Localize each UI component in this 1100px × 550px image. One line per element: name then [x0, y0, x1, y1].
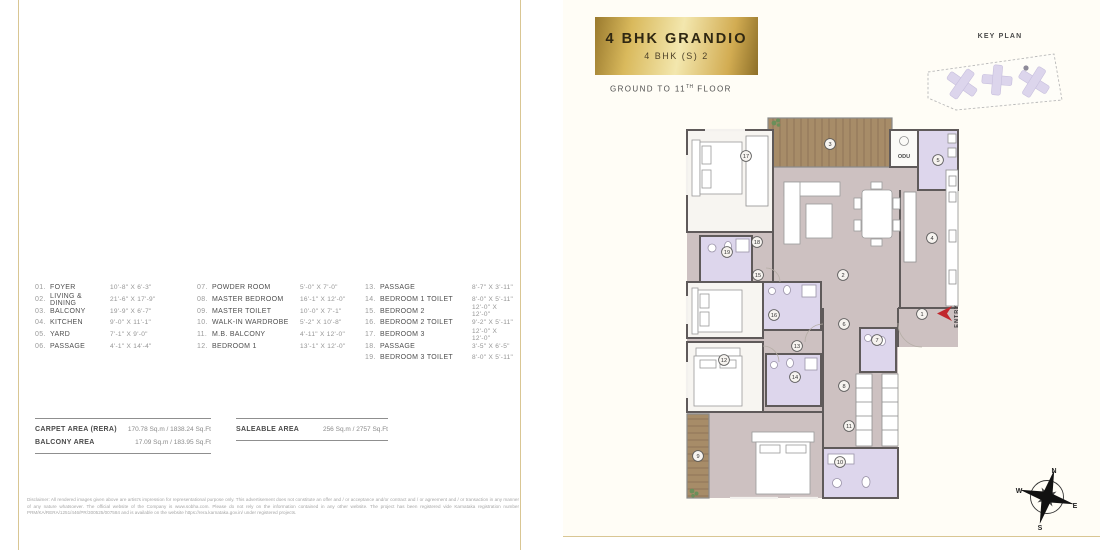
room-marker-10: 10 — [835, 457, 846, 468]
legend-room-dimension: 9'-2" X 5'-11" — [472, 319, 513, 326]
legend-room-name: FOYER — [50, 284, 110, 291]
legend-row: 07. POWDER ROOM 5'-0" X 7'-0" — [197, 282, 365, 294]
svg-text:1: 1 — [920, 312, 923, 318]
saleable-area-value: 256 Sq.m / 2757 Sq.Ft — [323, 426, 388, 433]
highlighted-unit-dot — [1023, 65, 1028, 70]
legend-number: 13. — [365, 284, 380, 291]
legend-number: 05. — [35, 331, 50, 338]
room-marker-16: 16 — [769, 310, 780, 321]
legend-column-2: 07. POWDER ROOM 5'-0" X 7'-0" 08. MASTER… — [197, 282, 365, 352]
legend-room-name: BEDROOM 2 — [380, 308, 472, 315]
legend-room-dimension: 5'-0" X 7'-0" — [300, 284, 338, 291]
saleable-area-table: SALEABLE AREA 256 Sq.m / 2757 Sq.Ft — [236, 418, 388, 441]
svg-text:18: 18 — [754, 240, 760, 246]
compass-rose: N E S W — [1012, 462, 1082, 532]
svg-text:14: 14 — [792, 375, 798, 381]
svg-text:17: 17 — [743, 154, 749, 160]
balcony-area-label: BALCONY AREA — [35, 439, 95, 446]
legend-room-name: YARD — [50, 331, 110, 338]
room-marker-3: 3 — [825, 139, 836, 150]
room-marker-14: 14 — [790, 372, 801, 383]
bottom-gold-rule — [563, 536, 1100, 537]
legend-column-3: 13. PASSAGE 8'-7" X 3'-11" 14. BEDROOM 1… — [365, 282, 517, 364]
floor-range-suffix: FLOOR — [694, 85, 732, 94]
legend-room-dimension: 12'-0" X 12'-0" — [472, 304, 517, 318]
legend-room-dimension: 8'-7" X 3'-11" — [472, 284, 513, 291]
room-marker-19: 19 — [722, 247, 733, 258]
legend-number: 10. — [197, 319, 212, 326]
legend-number: 01. — [35, 284, 50, 291]
legend-room-dimension: 4'-11" X 12'-0" — [300, 331, 345, 338]
legend-number: 15. — [365, 308, 380, 315]
center-gold-rule — [520, 0, 521, 550]
svg-text:16: 16 — [771, 313, 777, 319]
legend-row: 15. BEDROOM 2 12'-0" X 12'-0" — [365, 305, 517, 317]
legend-row: 19. BEDROOM 3 TOILET 8'-0" X 5'-11" — [365, 352, 517, 364]
balcony-area-value: 17.09 Sq.m / 183.95 Sq.Ft — [135, 439, 211, 446]
legend-room-dimension: 10'-0" X 7'-1" — [300, 308, 342, 315]
legend-room-dimension: 10'-8" X 6'-3" — [110, 284, 152, 291]
svg-text:15: 15 — [755, 273, 761, 279]
legend-number: 07. — [197, 284, 212, 291]
room-marker-17: 17 — [741, 151, 752, 162]
odu-label: ODU — [898, 154, 910, 160]
legend-row: 06. PASSAGE 4'-1" X 14'-4" — [35, 340, 197, 352]
room-marker-1: 1 — [917, 309, 928, 320]
legend-room-name: PASSAGE — [50, 343, 110, 350]
legend-row: 05. YARD 7'-1" X 9'-0" — [35, 329, 197, 341]
room-marker-18: 18 — [752, 237, 763, 248]
compass-major-star — [1013, 463, 1082, 532]
legend-row: 02. LIVING & DINING 21'-6" X 17'-9" — [35, 294, 197, 306]
legend-room-dimension: 21'-6" X 17'-9" — [110, 296, 156, 303]
room-marker-7: 7 — [872, 335, 883, 346]
room-marker-4: 4 — [927, 233, 938, 244]
legend-room-name: BEDROOM 1 TOILET — [380, 296, 472, 303]
legend-room-dimension: 9'-0" X 11'-1" — [110, 319, 151, 326]
svg-text:6: 6 — [842, 322, 845, 328]
legend-row: 10. WALK-IN WARDROBE 5'-2" X 10'-8" — [197, 317, 365, 329]
legend-number: 04. — [35, 319, 50, 326]
legend-row: 03. BALCONY 19'-9" X 6'-7" — [35, 305, 197, 317]
legend-number: 03. — [35, 308, 50, 315]
legend-column-1: 01. FOYER 10'-8" X 6'-3" 02. LIVING & DI… — [35, 282, 197, 352]
legend-row: 12. BEDROOM 1 13'-1" X 12'-0" — [197, 340, 365, 352]
room-marker-12: 12 — [719, 355, 730, 366]
unit-title-card: 4 BHK GRANDIO 4 BHK (S) 2 — [595, 17, 758, 75]
legend-room-dimension: 8'-0" X 5'-11" — [472, 354, 513, 361]
svg-text:4: 4 — [930, 236, 933, 242]
legend-room-dimension: 12'-0" X 12'-0" — [472, 328, 517, 342]
legend-number: 02. — [35, 296, 50, 303]
legend-room-name: KITCHEN — [50, 319, 110, 326]
legend-room-dimension: 7'-1" X 9'-0" — [110, 331, 148, 338]
legend-number: 16. — [365, 319, 380, 326]
legend-room-name: PASSAGE — [380, 343, 472, 350]
legend-room-name: MASTER TOILET — [212, 308, 300, 315]
unit-subtitle: 4 BHK (S) 2 — [644, 51, 709, 61]
key-plan-diagram — [918, 42, 1068, 114]
saleable-area-label: SALEABLE AREA — [236, 426, 299, 433]
legend-number: 11. — [197, 331, 212, 338]
compass-west-label: W — [1016, 488, 1023, 495]
legend-room-name: WALK-IN WARDROBE — [212, 319, 300, 326]
svg-text:2: 2 — [841, 273, 844, 279]
legend-number: 18. — [365, 343, 380, 350]
legend-row: 11. M.B. BALCONY 4'-11" X 12'-0" — [197, 329, 365, 341]
floor-range-ordinal: TH — [686, 84, 694, 90]
disclaimer-text: Disclaimer: All rendered images given ab… — [27, 497, 519, 517]
svg-text:12: 12 — [721, 358, 727, 364]
legend-row: 18. PASSAGE 3'-5" X 6'-5" — [365, 340, 517, 352]
legend-room-name: BEDROOM 3 TOILET — [380, 354, 472, 361]
legend-room-dimension: 3'-5" X 6'-5" — [472, 343, 510, 350]
entry-label: ENTRY — [954, 304, 960, 327]
legend-row: 17. BEDROOM 3 12'-0" X 12'-0" — [365, 329, 517, 341]
svg-text:8: 8 — [842, 384, 845, 390]
room-marker-6: 6 — [839, 319, 850, 330]
legend-room-dimension: 13'-1" X 12'-0" — [300, 343, 346, 350]
compass-south-label: S — [1038, 525, 1043, 532]
unit-title: 4 BHK GRANDIO — [605, 31, 747, 47]
room-marker-5: 5 — [933, 155, 944, 166]
room-marker-11: 11 — [844, 421, 855, 432]
floor-range: GROUND TO 11TH FLOOR — [610, 84, 732, 94]
legend-number: 14. — [365, 296, 380, 303]
key-plan-label: KEY PLAN — [930, 33, 1070, 40]
floor-plan: ODU ENTRY 12345678910111213141516171819 — [660, 110, 970, 510]
carpet-area-value: 170.78 Sq.m / 1838.24 Sq.Ft — [128, 426, 211, 433]
carpet-balcony-area-table: CARPET AREA (RERA) 170.78 Sq.m / 1838.24… — [35, 418, 211, 454]
svg-text:10: 10 — [837, 460, 843, 466]
svg-text:5: 5 — [936, 158, 939, 164]
legend-room-name: LIVING & DINING — [50, 293, 110, 307]
legend-room-dimension: 16'-1" X 12'-0" — [300, 296, 346, 303]
svg-text:19: 19 — [724, 250, 730, 256]
legend-number: 17. — [365, 331, 380, 338]
left-gold-rule — [18, 0, 19, 550]
room-marker-9: 9 — [693, 451, 704, 462]
legend-number: 12. — [197, 343, 212, 350]
compass-east-label: E — [1073, 503, 1078, 510]
legend-room-dimension: 8'-0" X 5'-11" — [472, 296, 513, 303]
room-marker-2: 2 — [838, 270, 849, 281]
legend-number: 08. — [197, 296, 212, 303]
legend-row: 09. MASTER TOILET 10'-0" X 7'-1" — [197, 305, 365, 317]
legend-room-name: POWDER ROOM — [212, 284, 300, 291]
svg-text:7: 7 — [875, 338, 878, 344]
legend-room-dimension: 4'-1" X 14'-4" — [110, 343, 152, 350]
legend-row: 08. MASTER BEDROOM 16'-1" X 12'-0" — [197, 294, 365, 306]
legend-room-name: PASSAGE — [380, 284, 472, 291]
svg-text:3: 3 — [828, 142, 831, 148]
legend-number: 06. — [35, 343, 50, 350]
legend-room-name: M.B. BALCONY — [212, 331, 300, 338]
brochure-page: 01. FOYER 10'-8" X 6'-3" 02. LIVING & DI… — [0, 0, 1100, 550]
svg-text:9: 9 — [696, 454, 699, 460]
legend-room-dimension: 5'-2" X 10'-8" — [300, 319, 342, 326]
legend-room-name: BEDROOM 1 — [212, 343, 300, 350]
carpet-area-label: CARPET AREA (RERA) — [35, 426, 117, 433]
legend-number: 19. — [365, 354, 380, 361]
room-marker-15: 15 — [753, 270, 764, 281]
svg-text:13: 13 — [794, 344, 800, 350]
legend-room-name: MASTER BEDROOM — [212, 296, 300, 303]
legend-row: 13. PASSAGE 8'-7" X 3'-11" — [365, 282, 517, 294]
legend-row: 04. KITCHEN 9'-0" X 11'-1" — [35, 317, 197, 329]
room-marker-13: 13 — [792, 341, 803, 352]
legend-room-dimension: 19'-9" X 6'-7" — [110, 308, 152, 315]
legend-number: 09. — [197, 308, 212, 315]
floor-range-prefix: GROUND TO 11 — [610, 85, 686, 94]
compass-north-label: N — [1051, 468, 1056, 475]
legend-room-name: BEDROOM 2 TOILET — [380, 319, 472, 326]
room-odu — [890, 130, 918, 167]
svg-text:11: 11 — [846, 424, 852, 430]
legend-room-name: BEDROOM 3 — [380, 331, 472, 338]
room-marker-8: 8 — [839, 381, 850, 392]
legend-room-name: BALCONY — [50, 308, 110, 315]
